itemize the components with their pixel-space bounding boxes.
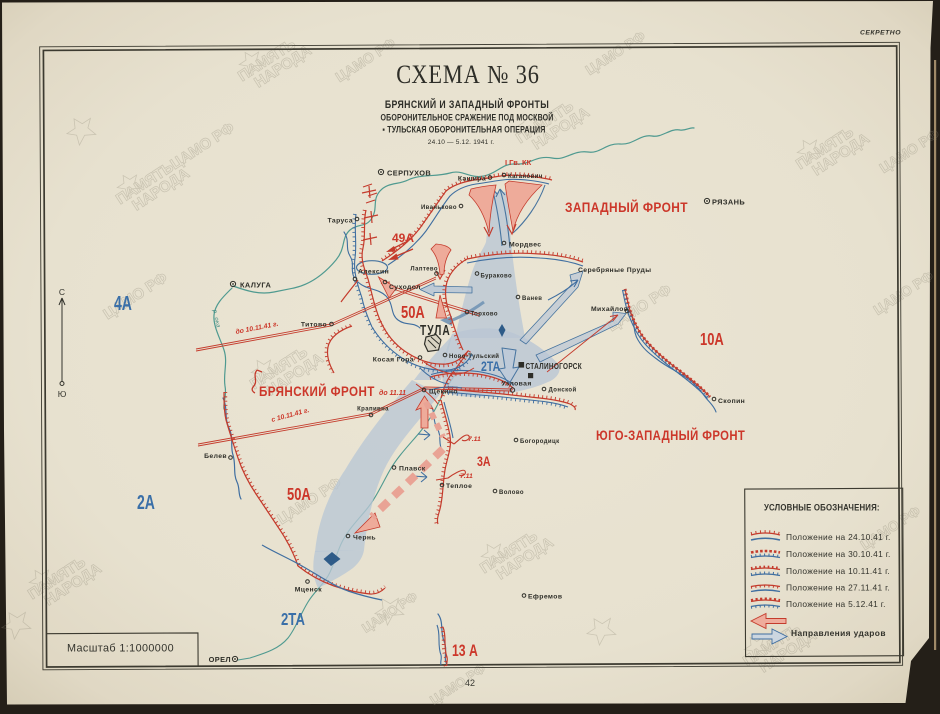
svg-text:Плавск: Плавск bbox=[399, 466, 426, 473]
svg-text:Суходол: Суходол bbox=[389, 284, 421, 291]
svg-text:СЕРПУХОВ: СЕРПУХОВ bbox=[387, 169, 431, 178]
svg-text:Положение на 5.12.41 г.: Положение на 5.12.41 г. bbox=[786, 599, 886, 609]
svg-text:Положение на 24.10.41 г.: Положение на 24.10.41 г. bbox=[786, 532, 891, 542]
svg-text:Серебряные Пруды: Серебряные Пруды bbox=[578, 266, 651, 274]
svg-text:7.11: 7.11 bbox=[460, 473, 473, 480]
svg-text:Богородицк: Богородицк bbox=[520, 439, 560, 445]
svg-text:СТАЛИНОГОРСК: СТАЛИНОГОРСК bbox=[526, 361, 582, 371]
svg-text:Чернь: Чернь bbox=[353, 535, 376, 542]
svg-text:Крапивна: Крапивна bbox=[357, 407, 389, 413]
svg-text:Положение на 30.10.41 г.: Положение на 30.10.41 г. bbox=[786, 549, 891, 559]
svg-text:Бураково: Бураково bbox=[481, 274, 513, 280]
svg-text:ЗАПАДНЫЙ ФРОНТ: ЗАПАДНЫЙ ФРОНТ bbox=[565, 199, 688, 215]
svg-text:УСЛОВНЫЕ ОБОЗНАЧЕНИЯ:: УСЛОВНЫЕ ОБОЗНАЧЕНИЯ: bbox=[764, 502, 880, 513]
svg-text:49А: 49А bbox=[392, 231, 414, 245]
svg-text:Донской: Донской bbox=[549, 387, 577, 394]
svg-text:Масштаб 1:1000000: Масштаб 1:1000000 bbox=[67, 643, 174, 655]
svg-text:Белев: Белев bbox=[204, 453, 227, 460]
svg-text:КАЛУГА: КАЛУГА bbox=[240, 281, 271, 290]
svg-text:С: С bbox=[59, 287, 65, 297]
svg-text:Лаптево: Лаптево bbox=[410, 267, 438, 273]
svg-text:Положение на 27.11.41 г.: Положение на 27.11.41 г. bbox=[786, 583, 890, 593]
svg-text:50А: 50А bbox=[401, 303, 425, 323]
svg-text:42: 42 bbox=[465, 678, 475, 688]
svg-text:Мценск: Мценск bbox=[295, 587, 323, 594]
svg-text:ЮГО-ЗАПАДНЫЙ ФРОНТ: ЮГО-ЗАПАДНЫЙ ФРОНТ bbox=[596, 427, 745, 443]
svg-text:4А: 4А bbox=[114, 291, 132, 314]
svg-text:13 А: 13 А bbox=[452, 642, 478, 660]
svg-text:7.11: 7.11 bbox=[468, 436, 481, 443]
svg-text:Михайлов: Михайлов bbox=[591, 305, 628, 313]
svg-text:Теплое: Теплое bbox=[446, 483, 472, 490]
svg-text:Направления ударов: Направления ударов bbox=[791, 628, 886, 638]
svg-text:Торхово: Торхово bbox=[471, 312, 498, 318]
svg-text:Скопин: Скопин bbox=[718, 398, 745, 405]
svg-text:2ТА: 2ТА bbox=[281, 610, 305, 629]
svg-text:24.10 — 5.12. 1941 г.: 24.10 — 5.12. 1941 г. bbox=[428, 139, 495, 146]
svg-text:Мордвес: Мордвес bbox=[509, 242, 541, 249]
svg-text:Ю: Ю bbox=[58, 389, 67, 399]
svg-text:СХЕМА № 36: СХЕМА № 36 bbox=[396, 60, 540, 89]
svg-text:РЯЗАНЬ: РЯЗАНЬ bbox=[712, 198, 745, 207]
svg-text:3А: 3А bbox=[477, 454, 491, 470]
svg-text:БРЯНСКИЙ ФРОНТ: БРЯНСКИЙ ФРОНТ bbox=[259, 383, 375, 399]
svg-text:Положение на 10.11.41 г.: Положение на 10.11.41 г. bbox=[786, 566, 890, 576]
svg-text:▪ ТУЛЬСКАЯ ОБОРОНИТЕЛЬНАЯ ОПЕР: ▪ ТУЛЬСКАЯ ОБОРОНИТЕЛЬНАЯ ОПЕРАЦИЯ bbox=[382, 125, 545, 135]
svg-text:Ефремов: Ефремов bbox=[528, 594, 562, 601]
svg-text:БРЯНСКИЙ И ЗАПАДНЫЙ ФРОНТЫ: БРЯНСКИЙ И ЗАПАДНЫЙ ФРОНТЫ bbox=[385, 97, 549, 111]
svg-text:Узловая: Узловая bbox=[502, 381, 532, 388]
svg-text:Каганович: Каганович bbox=[508, 174, 543, 180]
svg-text:I Гв. КК: I Гв. КК bbox=[505, 158, 532, 167]
svg-text:Кашира: Кашира bbox=[458, 176, 486, 183]
svg-text:Ванев: Ванев bbox=[522, 296, 542, 302]
svg-text:Алексин: Алексин bbox=[358, 269, 389, 276]
svg-text:10А: 10А bbox=[700, 330, 724, 350]
svg-text:ОБОРОНИТЕЛЬНОЕ СРАЖЕНИЕ ПОД МО: ОБОРОНИТЕЛЬНОЕ СРАЖЕНИЕ ПОД МОСКВОЙ bbox=[381, 113, 554, 123]
svg-text:до 11.11: до 11.11 bbox=[379, 389, 406, 397]
svg-text:ОРЕЛ: ОРЕЛ bbox=[209, 655, 231, 664]
svg-text:Иваньково: Иваньково bbox=[421, 205, 457, 211]
svg-text:2ТА: 2ТА bbox=[481, 359, 500, 375]
svg-text:50А: 50А bbox=[287, 485, 311, 505]
svg-text:2А: 2А bbox=[137, 490, 155, 513]
svg-text:Волово: Волово bbox=[499, 490, 524, 496]
svg-text:Титово: Титово bbox=[301, 322, 327, 329]
svg-text:СЕКРЕТНО: СЕКРЕТНО bbox=[860, 30, 901, 37]
svg-text:Косая Гора: Косая Гора bbox=[373, 357, 414, 364]
svg-text:Щекино: Щекино bbox=[429, 389, 458, 396]
svg-text:Таруса: Таруса bbox=[328, 218, 353, 225]
